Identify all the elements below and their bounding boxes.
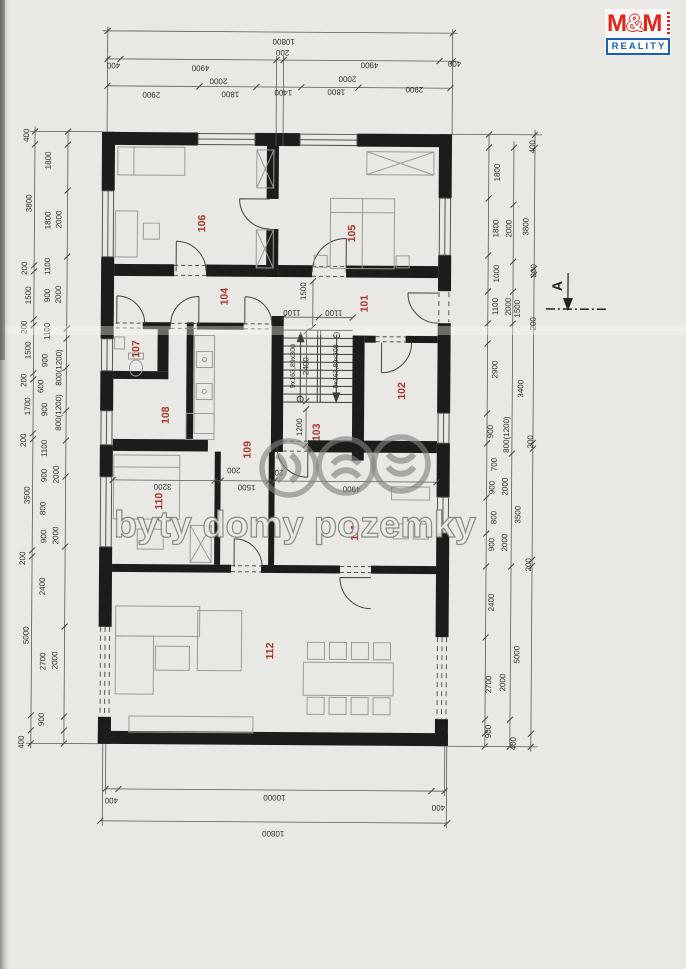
floor-plan-drawing <box>0 0 686 969</box>
scan-artifact-band <box>0 326 686 335</box>
scan-edge-dark-artifact <box>0 0 5 360</box>
logo-product-label: REALITY <box>606 38 670 55</box>
logo-brand-text: M&M <box>607 9 661 38</box>
staircase <box>283 330 353 402</box>
stair-direction-arrows <box>296 331 341 403</box>
interior-walls <box>112 145 439 574</box>
scanned-floor-plan-page: 1080040049002004900400290020001800140018… <box>0 0 686 969</box>
floor-plan-tilt-wrapper: 1080040049002004900400290020001800140018… <box>0 0 686 969</box>
logo-vertical-strip <box>667 12 670 34</box>
mm-reality-logo: M&M REALITY <box>605 9 671 55</box>
logo-brand-row: M&M <box>605 9 671 38</box>
section-line-a <box>546 273 606 311</box>
